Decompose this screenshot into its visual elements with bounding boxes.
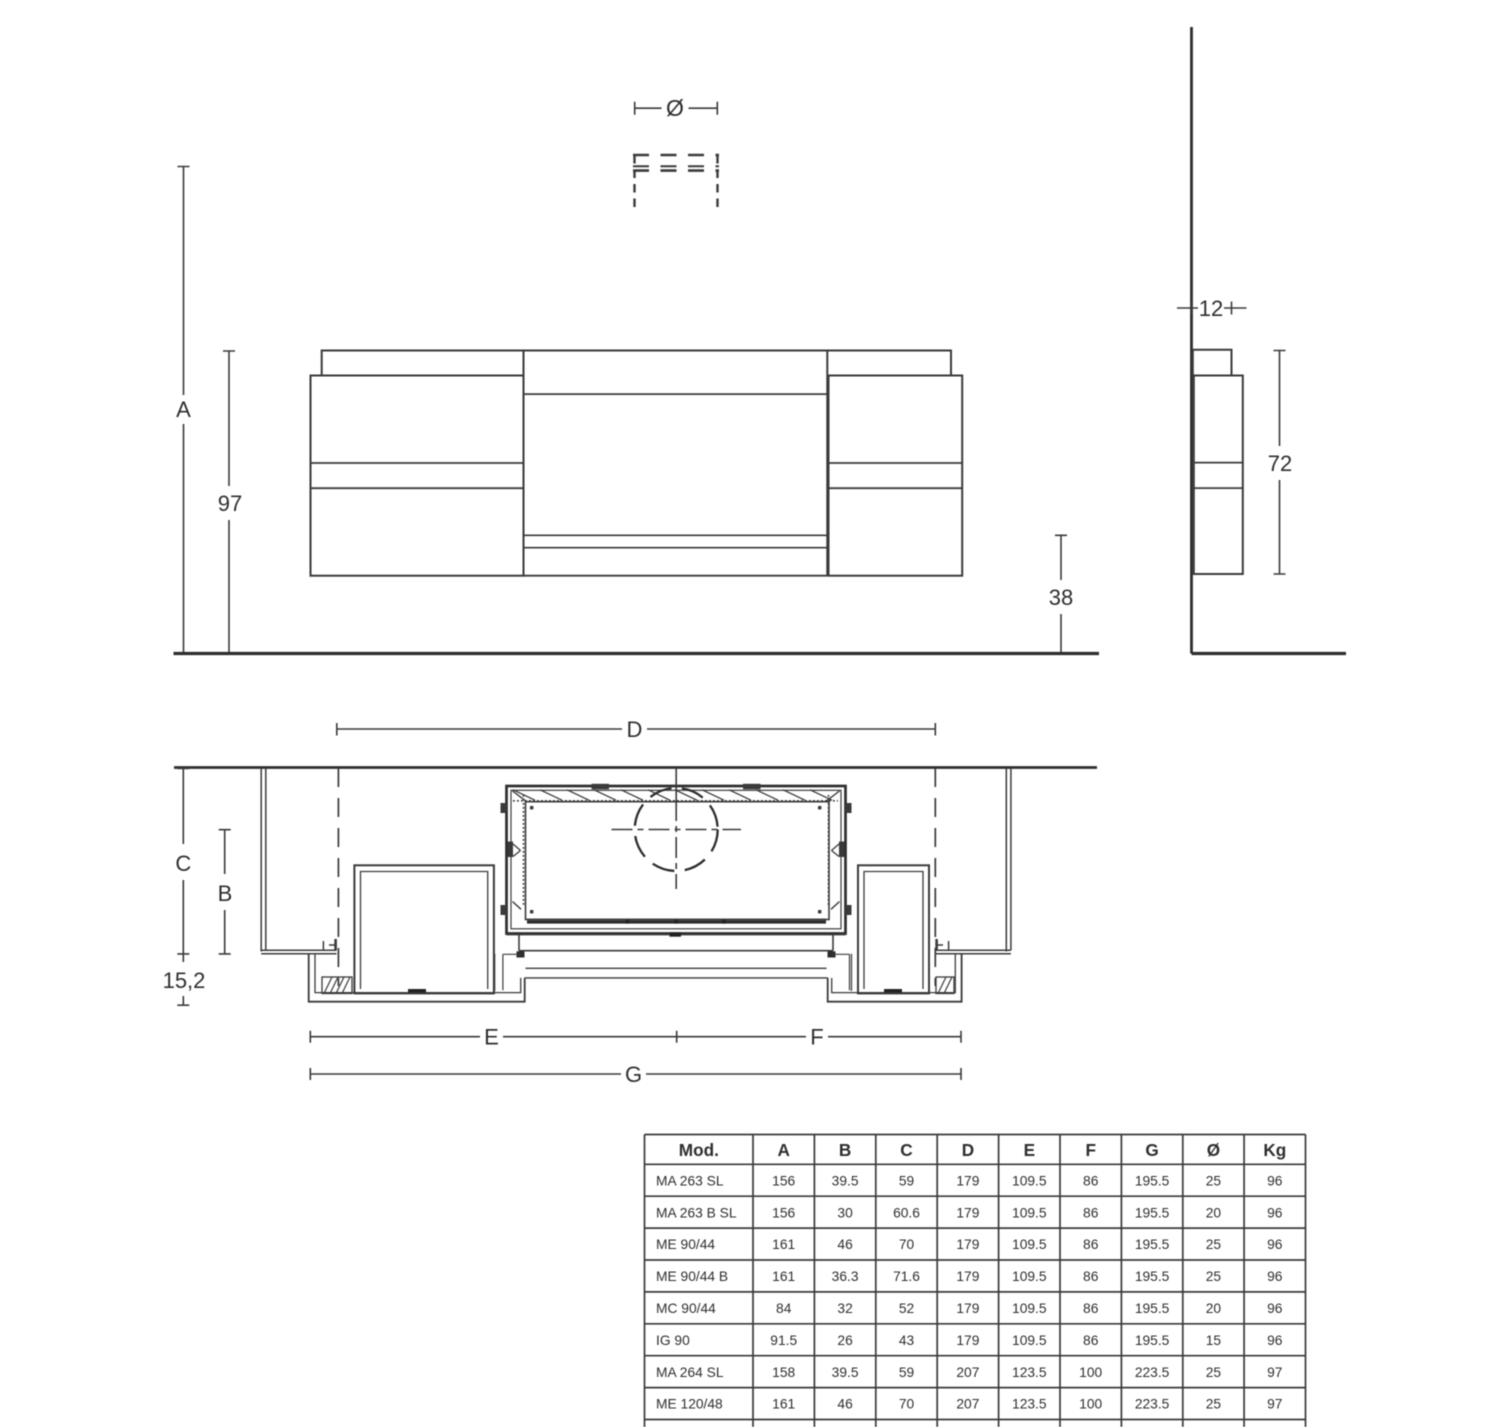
svg-text:123.5: 123.5 — [1012, 1397, 1047, 1412]
svg-text:96: 96 — [1267, 1301, 1283, 1316]
svg-text:195.5: 195.5 — [1135, 1333, 1170, 1348]
svg-text:D: D — [962, 1140, 974, 1160]
svg-text:109.5: 109.5 — [1012, 1333, 1047, 1348]
svg-text:156: 156 — [772, 1173, 795, 1188]
svg-text:Mod.: Mod. — [679, 1140, 719, 1160]
svg-text:E: E — [484, 1025, 499, 1050]
svg-text:25: 25 — [1206, 1237, 1222, 1252]
svg-text:46: 46 — [837, 1397, 853, 1412]
svg-text:91.5: 91.5 — [770, 1333, 797, 1348]
svg-text:123.5: 123.5 — [1012, 1365, 1047, 1380]
svg-text:96: 96 — [1267, 1269, 1283, 1284]
svg-text:97: 97 — [218, 491, 242, 516]
svg-text:B: B — [839, 1140, 851, 1160]
svg-text:158: 158 — [772, 1365, 795, 1380]
svg-text:26: 26 — [837, 1333, 853, 1348]
svg-text:96: 96 — [1267, 1173, 1283, 1188]
svg-text:86: 86 — [1083, 1301, 1099, 1316]
svg-text:109.5: 109.5 — [1012, 1205, 1047, 1220]
svg-text:F: F — [1085, 1140, 1096, 1160]
svg-text:A: A — [777, 1140, 789, 1160]
svg-text:179: 179 — [956, 1205, 979, 1220]
svg-text:30: 30 — [837, 1205, 853, 1220]
svg-text:F: F — [810, 1025, 823, 1050]
svg-text:59: 59 — [899, 1173, 915, 1188]
svg-text:C: C — [175, 851, 191, 876]
svg-text:161: 161 — [772, 1237, 795, 1252]
svg-text:20: 20 — [1206, 1205, 1222, 1220]
svg-text:100: 100 — [1079, 1365, 1102, 1380]
svg-text:36.3: 36.3 — [832, 1269, 859, 1284]
svg-text:195.5: 195.5 — [1135, 1173, 1170, 1188]
svg-text:20: 20 — [1206, 1301, 1222, 1316]
svg-text:96: 96 — [1267, 1333, 1283, 1348]
svg-text:161: 161 — [772, 1397, 795, 1412]
svg-text:39.5: 39.5 — [832, 1173, 859, 1188]
svg-text:Ø: Ø — [1207, 1140, 1220, 1160]
svg-text:Ø: Ø — [666, 95, 684, 121]
svg-text:25: 25 — [1206, 1397, 1222, 1412]
svg-text:IG 90: IG 90 — [656, 1333, 690, 1348]
svg-text:Kg: Kg — [1263, 1140, 1286, 1160]
svg-text:207: 207 — [956, 1365, 979, 1380]
svg-text:15,2: 15,2 — [163, 968, 206, 993]
svg-text:39.5: 39.5 — [832, 1365, 859, 1380]
svg-text:MA 264 SL: MA 264 SL — [656, 1365, 724, 1380]
svg-text:MC 90/44: MC 90/44 — [656, 1301, 716, 1316]
svg-text:60.6: 60.6 — [893, 1205, 920, 1220]
svg-text:ME 120/48: ME 120/48 — [656, 1397, 723, 1412]
svg-text:86: 86 — [1083, 1173, 1099, 1188]
svg-text:25: 25 — [1206, 1269, 1222, 1284]
svg-text:70: 70 — [899, 1237, 915, 1252]
svg-text:43: 43 — [899, 1333, 915, 1348]
svg-text:B: B — [218, 881, 233, 906]
svg-text:ME 90/44 B: ME 90/44 B — [656, 1269, 728, 1284]
svg-text:C: C — [900, 1140, 912, 1160]
svg-text:86: 86 — [1083, 1237, 1099, 1252]
svg-text:12: 12 — [1199, 296, 1223, 321]
svg-text:179: 179 — [956, 1301, 979, 1316]
svg-text:179: 179 — [956, 1269, 979, 1284]
svg-text:195.5: 195.5 — [1135, 1269, 1170, 1284]
svg-text:59: 59 — [899, 1365, 915, 1380]
svg-text:223.5: 223.5 — [1135, 1397, 1170, 1412]
svg-text:109.5: 109.5 — [1012, 1237, 1047, 1252]
svg-text:D: D — [627, 717, 643, 742]
svg-text:25: 25 — [1206, 1173, 1222, 1188]
svg-text:96: 96 — [1267, 1205, 1283, 1220]
svg-text:84: 84 — [776, 1301, 792, 1316]
svg-text:109.5: 109.5 — [1012, 1301, 1047, 1316]
svg-text:86: 86 — [1083, 1205, 1099, 1220]
svg-text:223.5: 223.5 — [1135, 1365, 1170, 1380]
svg-text:G: G — [625, 1062, 642, 1087]
svg-text:97: 97 — [1267, 1365, 1282, 1380]
svg-text:70: 70 — [899, 1397, 915, 1412]
svg-text:109.5: 109.5 — [1012, 1269, 1047, 1284]
svg-text:207: 207 — [956, 1397, 979, 1412]
svg-text:MA 263 SL: MA 263 SL — [656, 1173, 724, 1188]
svg-text:MA 263 B SL: MA 263 B SL — [656, 1205, 737, 1220]
svg-text:195.5: 195.5 — [1135, 1301, 1170, 1316]
svg-text:G: G — [1145, 1140, 1158, 1160]
svg-text:97: 97 — [1267, 1397, 1282, 1412]
svg-text:179: 179 — [956, 1173, 979, 1188]
svg-text:161: 161 — [772, 1269, 795, 1284]
svg-text:38: 38 — [1049, 585, 1073, 610]
svg-text:179: 179 — [956, 1333, 979, 1348]
svg-text:86: 86 — [1083, 1269, 1099, 1284]
svg-text:25: 25 — [1206, 1365, 1222, 1380]
svg-text:ME 90/44: ME 90/44 — [656, 1237, 715, 1252]
svg-text:86: 86 — [1083, 1333, 1099, 1348]
svg-text:71.6: 71.6 — [893, 1269, 920, 1284]
svg-text:96: 96 — [1267, 1237, 1283, 1252]
svg-text:195.5: 195.5 — [1135, 1205, 1170, 1220]
svg-text:46: 46 — [837, 1237, 853, 1252]
svg-text:15: 15 — [1206, 1333, 1222, 1348]
svg-text:72: 72 — [1268, 451, 1292, 476]
svg-text:E: E — [1024, 1140, 1035, 1160]
svg-text:52: 52 — [899, 1301, 914, 1316]
svg-text:32: 32 — [837, 1301, 852, 1316]
svg-text:100: 100 — [1079, 1397, 1102, 1412]
svg-text:156: 156 — [772, 1205, 795, 1220]
svg-text:A: A — [176, 397, 191, 422]
svg-text:195.5: 195.5 — [1135, 1237, 1170, 1252]
svg-text:179: 179 — [956, 1237, 979, 1252]
svg-text:109.5: 109.5 — [1012, 1173, 1047, 1188]
